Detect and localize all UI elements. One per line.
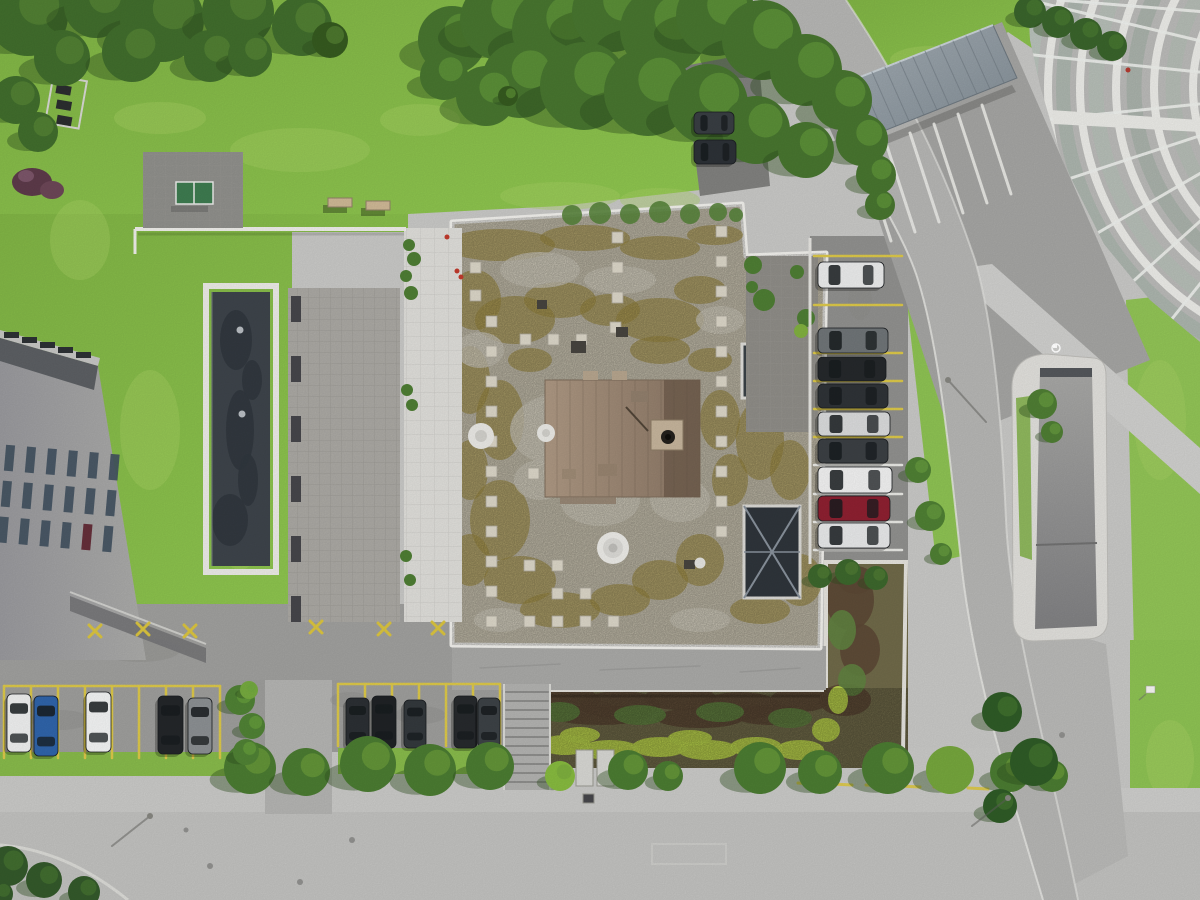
photo-grain (0, 0, 1200, 900)
scene-svg (0, 0, 1200, 900)
aerial-photo (0, 0, 1200, 900)
